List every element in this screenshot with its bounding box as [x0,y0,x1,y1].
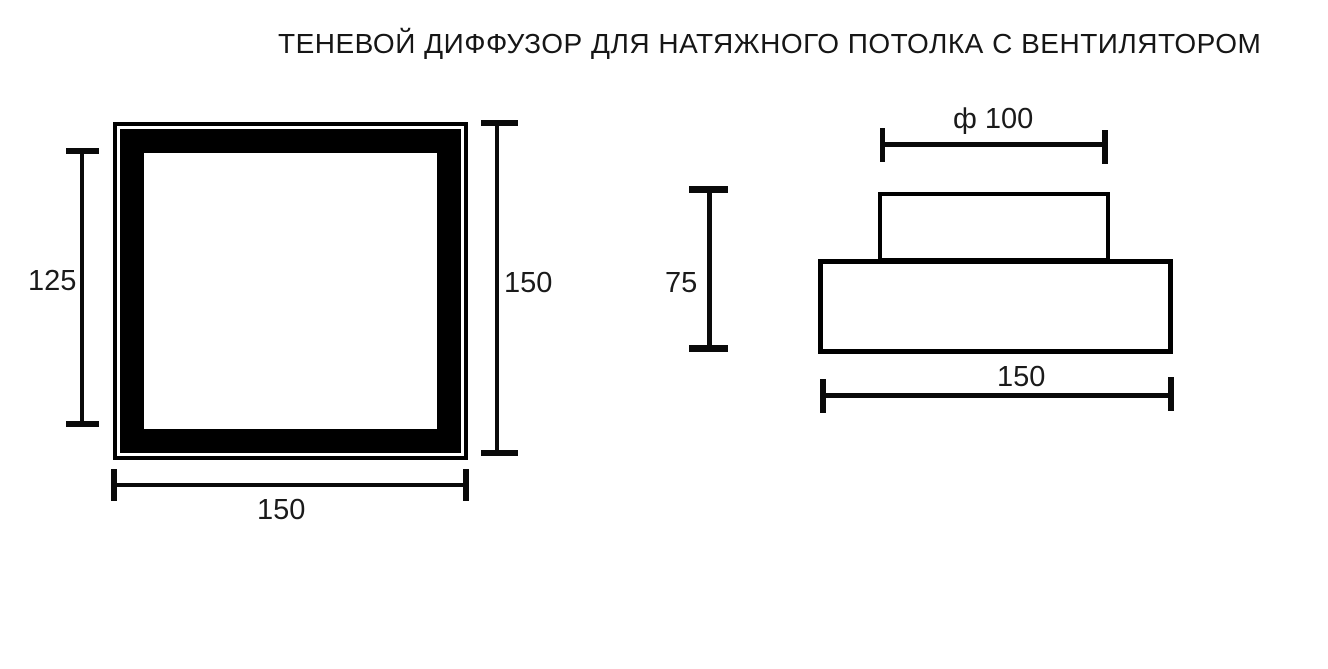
dimension-label: 150 [504,267,552,300]
front-frame-outer [113,122,468,460]
dimension-label: 75 [665,267,697,300]
dimension-tick [880,128,885,162]
side-duct-rect [878,192,1110,262]
dimension-label: 150 [257,494,305,527]
dimension-tick [111,469,117,501]
dimension-label: 125 [28,265,76,298]
dimension-tick [66,421,99,427]
dimension-line [495,123,499,455]
front-frame-opening [144,153,437,429]
dimension-tick [689,345,728,352]
dimension-tick [689,186,728,193]
dimension-line [882,142,1105,147]
dimension-tick [481,120,518,126]
dimension-tick [481,450,518,456]
dimension-line [80,152,84,425]
dimension-label: ф 100 [953,103,1033,136]
side-body-rect [818,259,1173,354]
dimension-label: 150 [997,361,1045,394]
dimension-tick [1102,130,1108,164]
dimension-tick [1168,377,1174,411]
dimension-tick [66,148,99,154]
drawing-title: ТЕНЕВОЙ ДИФФУЗОР ДЛЯ НАТЯЖНОГО ПОТОЛКА С… [278,28,1261,60]
dimension-tick [820,379,826,413]
dimension-line [707,189,712,350]
dimension-tick [463,469,469,501]
drawing-canvas: ТЕНЕВОЙ ДИФФУЗОР ДЛЯ НАТЯЖНОГО ПОТОЛКА С… [0,0,1328,669]
dimension-line [113,483,467,487]
